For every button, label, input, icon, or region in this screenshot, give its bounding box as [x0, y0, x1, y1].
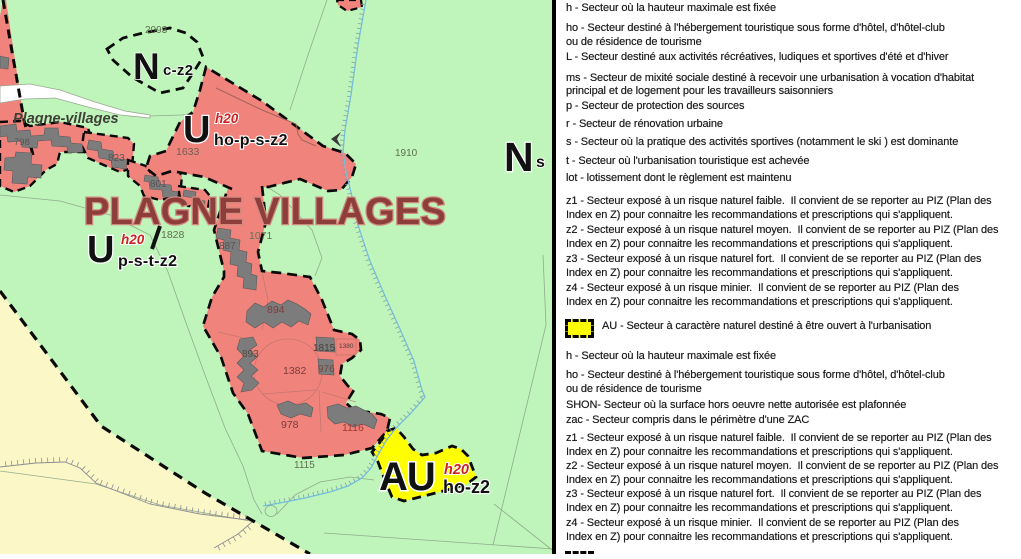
svg-text:893: 893 [242, 349, 259, 360]
svg-text:1380: 1380 [339, 343, 354, 350]
svg-text:ho-p-s-z2: ho-p-s-z2 [214, 132, 288, 149]
svg-text:976: 976 [318, 364, 335, 375]
svg-text:AU: AU [379, 455, 435, 499]
svg-text:1828: 1828 [161, 229, 185, 241]
svg-text:1910: 1910 [395, 148, 418, 159]
svg-text:2093: 2093 [145, 25, 168, 36]
svg-text:s: s [536, 154, 545, 171]
svg-text:1382: 1382 [283, 365, 307, 377]
svg-text:h20: h20 [215, 111, 239, 126]
svg-text:823: 823 [108, 153, 125, 164]
svg-text:1115: 1115 [294, 460, 315, 471]
svg-text:h20: h20 [121, 232, 145, 247]
svg-text:U: U [183, 109, 210, 151]
svg-text:1815: 1815 [313, 343, 336, 354]
svg-text:ho-z2: ho-z2 [443, 477, 490, 497]
svg-text:N: N [504, 134, 534, 180]
svg-text:801: 801 [150, 179, 167, 190]
svg-text:978: 978 [281, 419, 299, 431]
svg-text:1633: 1633 [176, 146, 200, 158]
svg-text:p-s-t-z2: p-s-t-z2 [118, 253, 177, 270]
svg-text:887: 887 [219, 241, 236, 252]
svg-text:PLAGNE VILLAGES: PLAGNE VILLAGES [84, 191, 446, 233]
svg-text:U: U [87, 229, 114, 271]
svg-text:798: 798 [14, 137, 30, 148]
svg-text:Plagne-villages: Plagne-villages [13, 111, 119, 127]
svg-text:c-z2: c-z2 [163, 62, 193, 79]
svg-text:h20: h20 [444, 462, 469, 478]
svg-text:N: N [133, 46, 160, 87]
svg-text:894: 894 [267, 304, 285, 316]
svg-text:1071: 1071 [249, 230, 273, 242]
svg-text:1116: 1116 [342, 422, 364, 434]
